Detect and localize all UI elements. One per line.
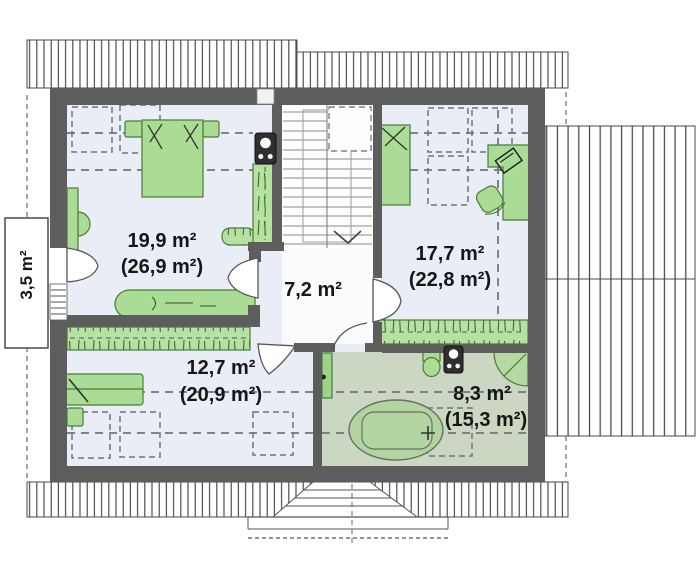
- roof-strip-top-left: [27, 40, 297, 88]
- nightstand-icon: [203, 121, 219, 137]
- wardrobe-icon: [67, 327, 250, 350]
- stairwell-wall: [272, 105, 282, 250]
- bathroom-area-label: 8,3 m²: [453, 383, 511, 405]
- bedroom2-slope-area-label: (22,8 m²): [409, 269, 491, 291]
- sofa-icon: [115, 290, 255, 318]
- roof-strip-top-right: [297, 52, 568, 88]
- hall-area-label: 7,2 m²: [284, 279, 342, 301]
- toilet-icon: [423, 352, 440, 377]
- floor-plan-drawing: 3,5 m²: [0, 0, 700, 574]
- side-table-icon: [67, 408, 83, 426]
- hall-bedroom-wall: [373, 105, 382, 278]
- nightstand-icon: [125, 121, 142, 137]
- bathtub-icon: [349, 400, 443, 460]
- roof-plane-right: [545, 126, 695, 436]
- bedroom1-area-label: 19,9 m²: [128, 230, 197, 252]
- desk-icon: [67, 188, 78, 250]
- balcony-area-label: 3,5 m²: [17, 250, 36, 299]
- bedroom3-slope-area-label: (20,9 m²): [180, 384, 262, 406]
- wall-vent-opening: [257, 89, 274, 104]
- sofa-bed-icon: [65, 374, 143, 405]
- staircase: [282, 105, 373, 248]
- bed-single-icon: [379, 125, 410, 205]
- chimney-flue-icon: [255, 133, 276, 164]
- bedroom1-slope-area-label: (26,9 m²): [121, 256, 203, 278]
- stair-opening-dashed: [329, 107, 371, 151]
- balcony: 3,5 m²: [5, 218, 48, 348]
- window: [50, 284, 67, 320]
- chimney-flue-icon: [444, 346, 463, 373]
- balcony-door-opening: [50, 248, 67, 284]
- bathroom-slope-area-label: (15,3 m²): [445, 409, 527, 431]
- bedroom-divider-wall: [50, 315, 258, 327]
- floor-plan-page: 3,5 m²: [0, 0, 700, 574]
- bedroom2-area-label: 17,7 m²: [416, 243, 485, 265]
- bedroom3-area-label: 12,7 m²: [187, 357, 256, 379]
